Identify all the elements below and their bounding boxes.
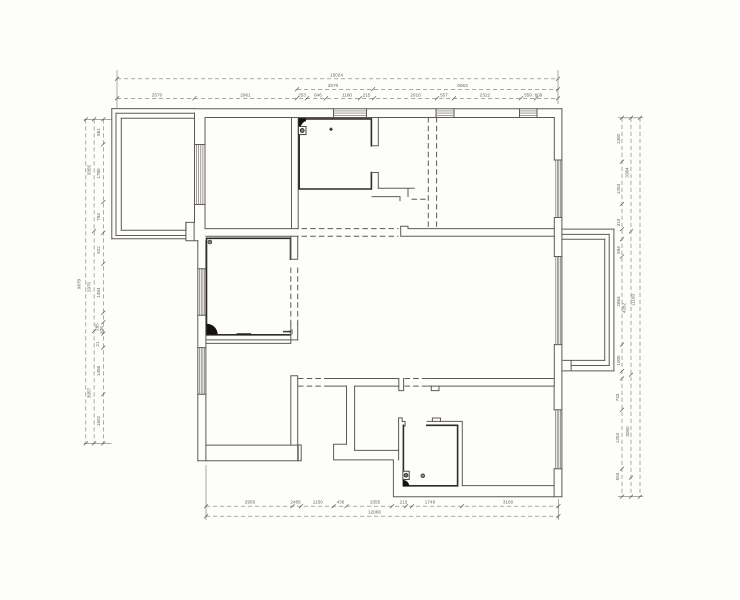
svg-text:1458: 1458 <box>96 365 101 376</box>
svg-text:609: 609 <box>535 92 543 97</box>
svg-text:12066: 12066 <box>368 510 381 515</box>
svg-text:743: 743 <box>615 393 620 401</box>
svg-text:1300: 1300 <box>616 133 621 144</box>
svg-text:6063: 6063 <box>457 83 468 88</box>
svg-text:1254: 1254 <box>615 432 620 443</box>
svg-text:9679: 9679 <box>77 278 82 289</box>
svg-text:436: 436 <box>337 500 345 505</box>
svg-text:922: 922 <box>96 246 101 254</box>
svg-text:1555: 1555 <box>370 500 381 505</box>
svg-text:1005: 1005 <box>616 355 621 366</box>
svg-text:15024: 15024 <box>330 72 343 77</box>
svg-text:3355: 3355 <box>86 164 91 175</box>
svg-text:1749: 1749 <box>425 500 436 505</box>
svg-text:557: 557 <box>440 92 448 97</box>
svg-text:2975: 2975 <box>86 281 91 292</box>
svg-text:553: 553 <box>615 472 620 480</box>
svg-text:1502: 1502 <box>96 415 101 426</box>
svg-text:1150: 1150 <box>313 500 323 505</box>
svg-text:559: 559 <box>524 92 532 97</box>
svg-text:3057: 3057 <box>86 387 91 398</box>
svg-text:1160: 1160 <box>342 92 352 97</box>
svg-text:215: 215 <box>363 92 371 97</box>
svg-text:253: 253 <box>298 92 306 97</box>
svg-text:2322: 2322 <box>480 92 491 97</box>
svg-text:310: 310 <box>616 218 621 226</box>
svg-text:2955: 2955 <box>245 500 256 505</box>
svg-text:1254: 1254 <box>616 183 621 194</box>
svg-text:1464: 1464 <box>96 287 101 298</box>
svg-text:3050: 3050 <box>625 426 630 437</box>
svg-text:2961: 2961 <box>240 92 251 97</box>
svg-text:2663: 2663 <box>616 296 621 307</box>
svg-text:11150: 11150 <box>631 294 636 307</box>
svg-text:646: 646 <box>314 92 322 97</box>
svg-text:2570: 2570 <box>152 92 163 97</box>
svg-text:2016: 2016 <box>410 92 421 97</box>
svg-text:1780: 1780 <box>96 168 101 179</box>
svg-text:21: 21 <box>95 341 100 347</box>
svg-text:2570: 2570 <box>328 83 339 88</box>
svg-text:861: 861 <box>96 128 101 136</box>
svg-text:3160: 3160 <box>503 500 514 505</box>
svg-text:2485: 2485 <box>290 500 301 505</box>
svg-text:338: 338 <box>99 326 104 334</box>
svg-text:215: 215 <box>400 500 408 505</box>
svg-text:3364: 3364 <box>625 167 630 178</box>
svg-text:594: 594 <box>616 246 621 254</box>
svg-text:4262: 4262 <box>622 302 627 313</box>
svg-text:794: 794 <box>96 213 101 221</box>
